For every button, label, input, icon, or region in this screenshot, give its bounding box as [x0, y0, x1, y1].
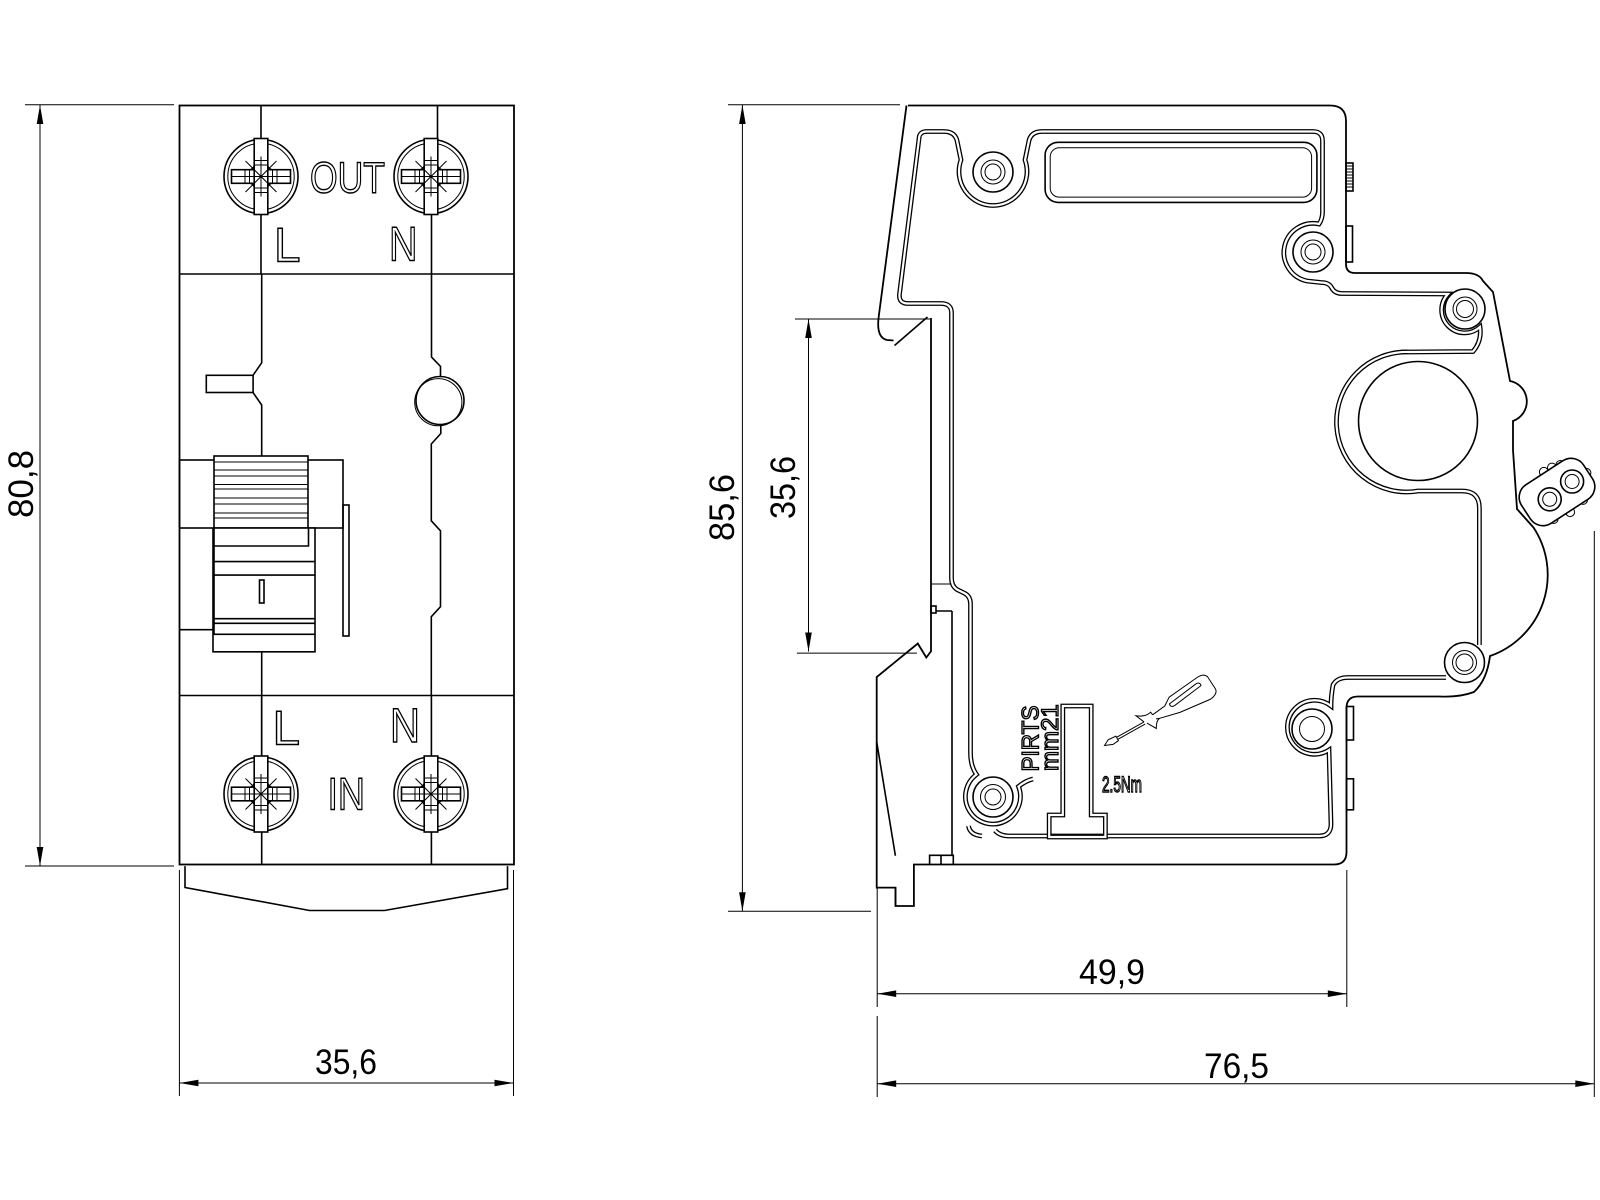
svg-text:N: N — [389, 219, 418, 272]
svg-text:L: L — [273, 703, 301, 756]
svg-text:49,9: 49,9 — [1079, 953, 1145, 992]
svg-text:OUT: OUT — [310, 154, 385, 203]
svg-text:85,6: 85,6 — [703, 474, 742, 541]
svg-text:80,8: 80,8 — [2, 450, 41, 518]
svg-text:L: L — [274, 220, 301, 273]
svg-text:35,6: 35,6 — [315, 1043, 377, 1082]
svg-text:PIRTS: PIRTS — [1018, 706, 1045, 772]
svg-text:76,5: 76,5 — [1204, 1047, 1269, 1086]
svg-text:2.5Nm: 2.5Nm — [1102, 772, 1142, 797]
svg-text:35,6: 35,6 — [764, 456, 803, 519]
svg-text:IN: IN — [328, 769, 366, 820]
svg-text:N: N — [390, 700, 420, 753]
